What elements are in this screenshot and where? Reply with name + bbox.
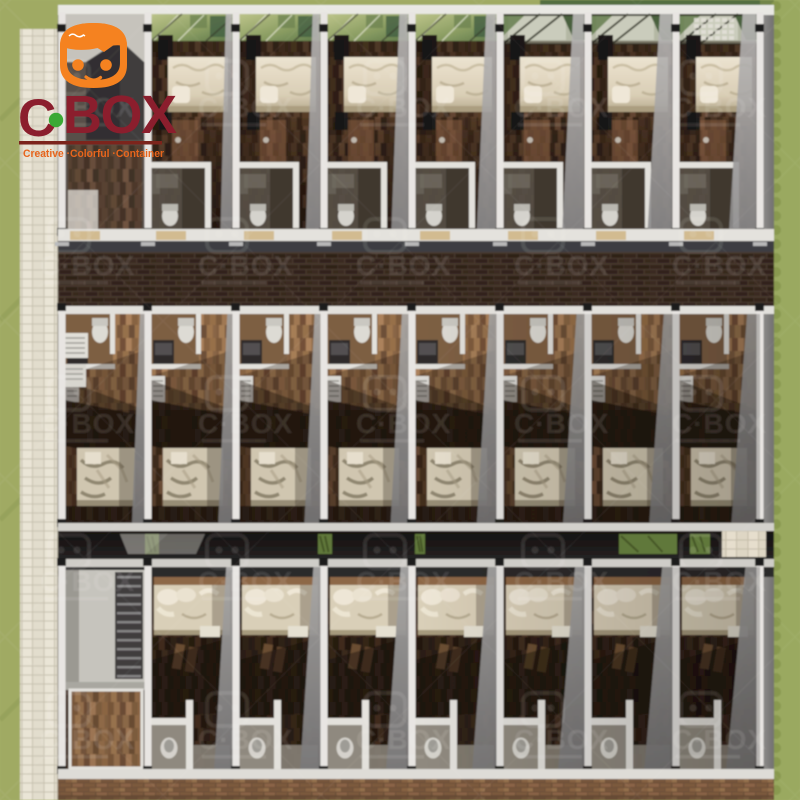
svg-text:BOX: BOX	[63, 85, 177, 145]
svg-text:Creative ·Colorful ·Container: Creative ·Colorful ·Container	[23, 148, 165, 160]
